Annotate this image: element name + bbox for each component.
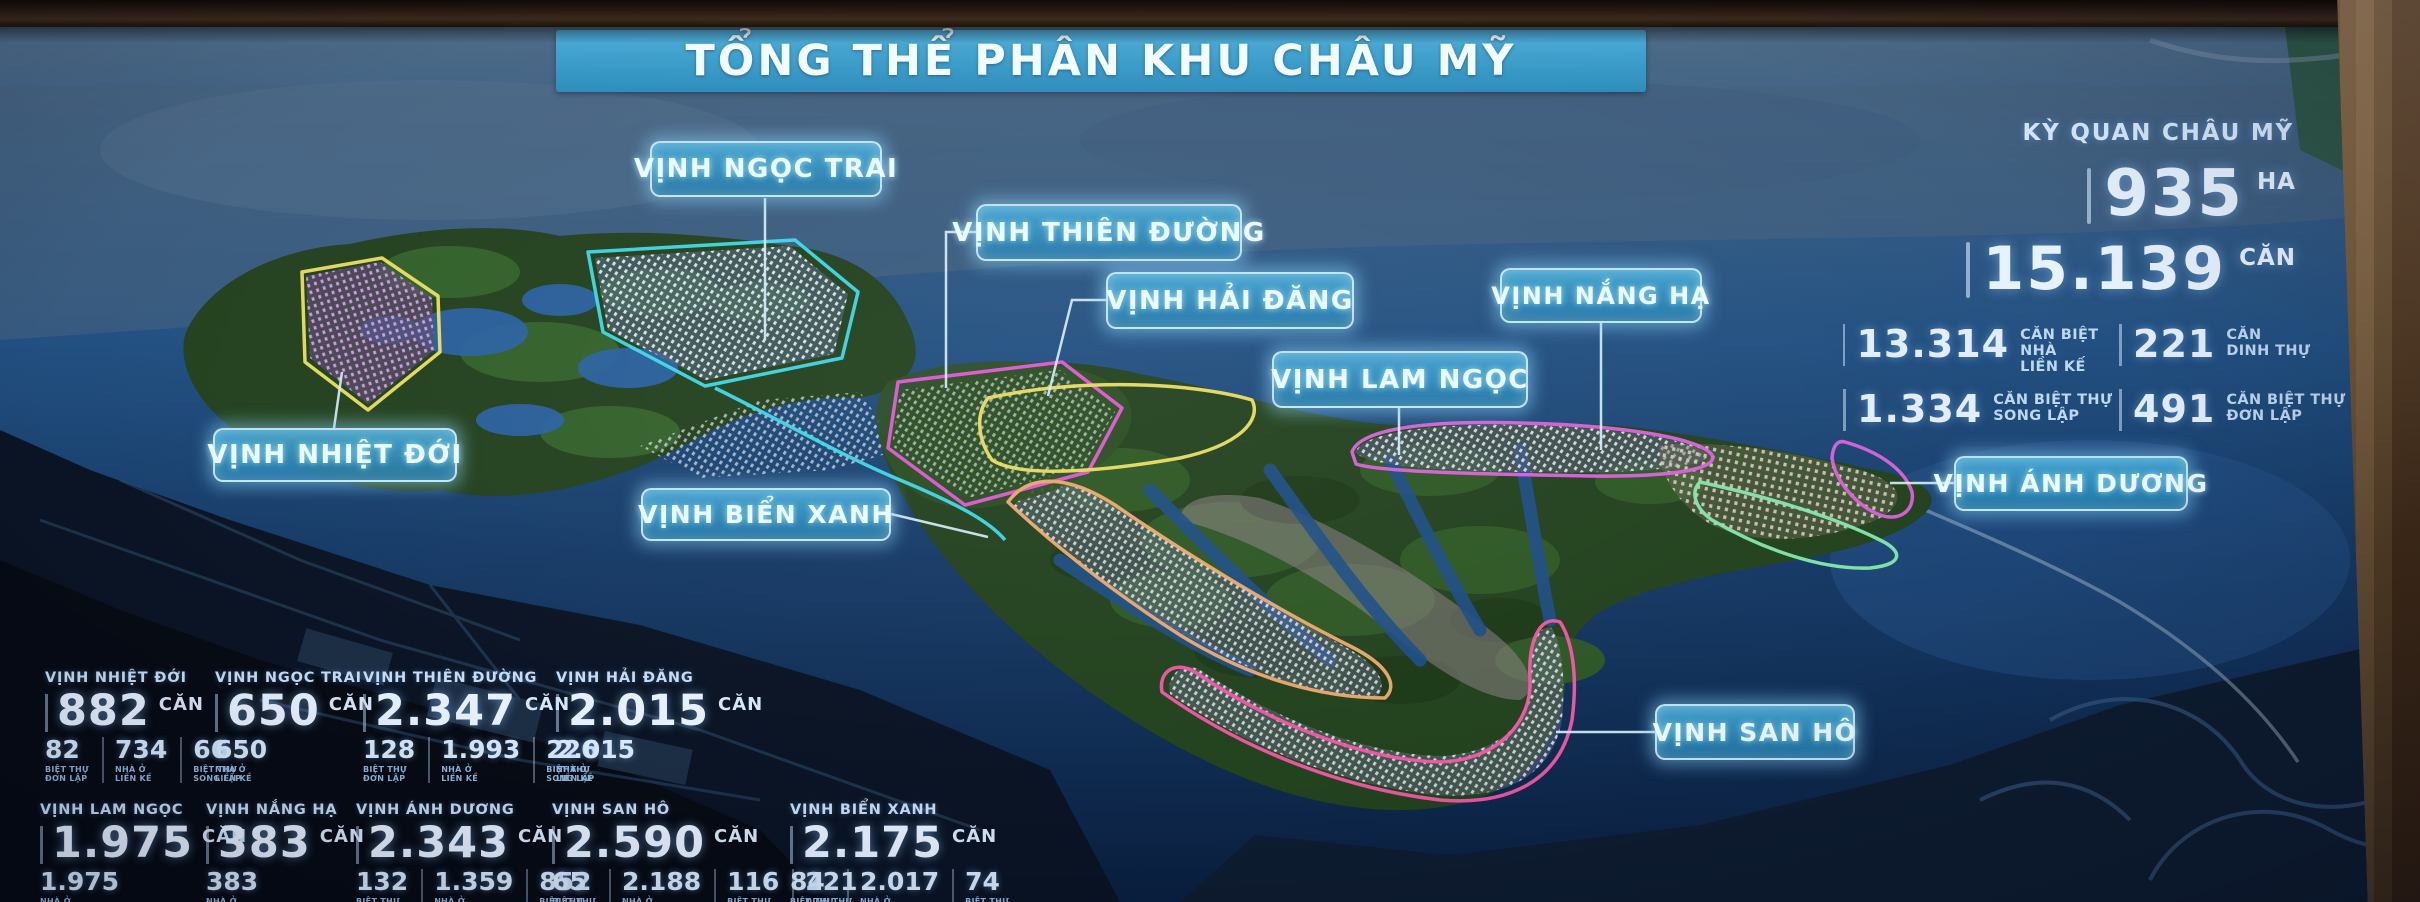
divider-bar bbox=[790, 826, 793, 864]
zone-unit: CĂN bbox=[718, 694, 763, 715]
divider-bar bbox=[45, 694, 48, 732]
zone-name: VỊNH BIỂN XANH bbox=[790, 802, 1026, 818]
breakdown-item: 13.314 CĂN BIỆT NHÀ LIỀN KẾ bbox=[1843, 322, 2119, 375]
breakdown-item: 1.334 CĂN BIỆT THỰ SONG LẬP bbox=[1843, 387, 2119, 431]
zone-sub-stat: 2.017NHÀ Ở LIỀN KỀ bbox=[847, 869, 952, 902]
zone-sub-stat: 84BIỆT THỰ ĐƠN LẬP bbox=[790, 869, 847, 902]
breakdown-label: CĂN BIỆT THỰ SONG LẬP bbox=[1993, 392, 2112, 424]
divider-bar bbox=[556, 694, 559, 732]
callout-vinh-nang-ha: VỊNH NẮNG HẠ bbox=[1500, 268, 1702, 323]
zone-unit: CĂN bbox=[159, 694, 204, 715]
zone-sub-stat: 2.188NHÀ Ở LIỀN KỀ bbox=[609, 869, 714, 902]
breakdown-item: 491 CĂN BIỆT THỰ ĐƠN LẬP bbox=[2119, 387, 2346, 431]
divider-bar bbox=[1843, 324, 1845, 366]
breakdown-value: 221 bbox=[2133, 322, 2215, 366]
divider-bar bbox=[363, 694, 366, 732]
wood-frame-top bbox=[0, 0, 2420, 27]
zone-total: 2.347 bbox=[375, 689, 516, 734]
page-title: TỔNG THỂ PHÂN KHU CHÂU MỸ bbox=[685, 36, 1516, 86]
divider-bar bbox=[1843, 389, 1846, 431]
divider-bar bbox=[40, 826, 43, 864]
callout-vinh-nhiet-doi: VỊNH NHIỆT ĐỚI bbox=[213, 428, 457, 482]
zone-sub-stat: 82BIỆT THỰ ĐƠN LẬP bbox=[45, 737, 102, 783]
zone-sub-stat: 116BIỆT THỰ SONG LẬP bbox=[714, 869, 792, 902]
zone-stats-vinh-bien-xanh: VỊNH BIỂN XANH 2.175 CĂN 84BIỆT THỰ ĐƠN … bbox=[790, 802, 1026, 902]
zone-sub-stat: 1.975NHÀ Ở LIỀN KỀ bbox=[40, 869, 132, 902]
zone-total: 2.015 bbox=[568, 689, 709, 734]
zone-sub-stat: 734NHÀ Ở LIỀN KỀ bbox=[102, 737, 180, 783]
callout-vinh-ngoc-trai: VỊNH NGỌC TRAI bbox=[650, 141, 882, 197]
zone-sub-stat: 132BIỆT THỰ ĐƠN LẬP bbox=[356, 869, 421, 902]
summary-area: 935 HA bbox=[2087, 160, 2296, 228]
summary-total-value: 15.139 bbox=[1983, 236, 2227, 302]
divider-bar bbox=[2119, 324, 2122, 366]
zone-sub-stat: 1.993NHÀ Ở LIỀN KỀ bbox=[428, 737, 533, 783]
divider-bar bbox=[2087, 168, 2091, 224]
divider-bar bbox=[356, 826, 359, 864]
zone-name: VỊNH NẮNG HẠ bbox=[206, 802, 365, 818]
callout-vinh-hai-dang: VỊNH HẢI ĐĂNG bbox=[1106, 272, 1354, 329]
summary-area-value: 935 bbox=[2104, 160, 2244, 228]
zone-name: VỊNH HẢI ĐĂNG bbox=[556, 670, 763, 686]
summary-heading: KỲ QUAN CHÂU MỸ bbox=[2022, 120, 2294, 146]
zone-sub-stat: 650NHÀ Ở LIỀN KỀ bbox=[215, 737, 280, 783]
zone-total: 882 bbox=[57, 689, 150, 734]
zone-stats-vinh-hai-dang: VỊNH HẢI ĐĂNG 2.015 CĂN 2.015NHÀ Ở LIỀN … bbox=[556, 670, 763, 783]
zone-stats-vinh-ngoc-trai: VỊNH NGỌC TRAI 650 CĂN 650NHÀ Ở LIỀN KỀ bbox=[215, 670, 374, 783]
zone-stats-vinh-nang-ha: VỊNH NẮNG HẠ 383 CĂN 383NHÀ Ở LIỀN KỀ bbox=[206, 802, 365, 902]
zone-sub-stat: 2.015NHÀ Ở LIỀN KỀ bbox=[556, 737, 648, 783]
zone-total: 1.975 bbox=[52, 821, 193, 866]
zone-sub-stat: 383NHÀ Ở LIỀN KỀ bbox=[206, 869, 271, 902]
divider-bar bbox=[215, 694, 218, 732]
zone-sub-stat: 74BIỆT THỰ SONG LẬP bbox=[952, 869, 1026, 902]
callout-vinh-anh-duong: VỊNH ÁNH DƯƠNG bbox=[1954, 456, 2188, 511]
breakdown-label: CĂN DINH THỰ bbox=[2226, 327, 2310, 359]
summary-total: 15.139 CĂN bbox=[1966, 236, 2296, 302]
breakdown-label: CĂN BIỆT THỰ ĐƠN LẬP bbox=[2226, 392, 2345, 424]
breakdown-value: 13.314 bbox=[1856, 322, 2009, 366]
zone-unit: CĂN bbox=[952, 826, 997, 847]
zone-total: 2.175 bbox=[802, 821, 943, 866]
zone-unit: CĂN bbox=[714, 826, 759, 847]
breakdown-label: CĂN BIỆT NHÀ LIỀN KẾ bbox=[2020, 327, 2119, 375]
divider-bar bbox=[552, 826, 555, 864]
summary-area-unit: HA bbox=[2257, 169, 2296, 195]
breakdown-value: 491 bbox=[2133, 387, 2215, 431]
divider-bar bbox=[2119, 389, 2122, 431]
zone-total: 2.343 bbox=[368, 821, 509, 866]
divider-bar bbox=[1966, 242, 1970, 298]
callout-vinh-san-ho: VỊNH SAN HÔ bbox=[1655, 704, 1855, 760]
breakdown-item: 221 CĂN DINH THỰ bbox=[2119, 322, 2346, 375]
breakdown-value: 1.334 bbox=[1857, 387, 1982, 431]
zone-sub-stat: 128BIỆT THỰ ĐƠN LẬP bbox=[363, 737, 428, 783]
summary-breakdown: 13.314 CĂN BIỆT NHÀ LIỀN KẾ 221 CĂN DINH… bbox=[1843, 322, 2346, 431]
zone-total: 2.590 bbox=[564, 821, 705, 866]
summary-total-unit: CĂN bbox=[2239, 245, 2296, 271]
callout-vinh-bien-xanh: VỊNH BIỂN XANH bbox=[641, 488, 891, 541]
zone-sub-stat: 65BIỆT THỰ ĐƠN LẬP bbox=[552, 869, 609, 902]
zone-total: 650 bbox=[227, 689, 320, 734]
zone-name: VỊNH NGỌC TRAI bbox=[215, 670, 374, 686]
title-banner: TỔNG THỂ PHÂN KHU CHÂU MỸ bbox=[556, 30, 1646, 92]
zone-sub-stat: 1.359NHÀ Ở LIỀN KỀ bbox=[421, 869, 526, 902]
masterplan-board: TỔNG THỂ PHÂN KHU CHÂU MỸ VỊNH NGỌC TRAI… bbox=[0, 0, 2420, 902]
callout-vinh-lam-ngoc: VỊNH LAM NGỌC bbox=[1272, 351, 1528, 408]
zone-total: 383 bbox=[218, 821, 311, 866]
divider-bar bbox=[206, 826, 209, 864]
callout-vinh-thien-duong: VỊNH THIÊN ĐƯỜNG bbox=[976, 204, 1242, 261]
